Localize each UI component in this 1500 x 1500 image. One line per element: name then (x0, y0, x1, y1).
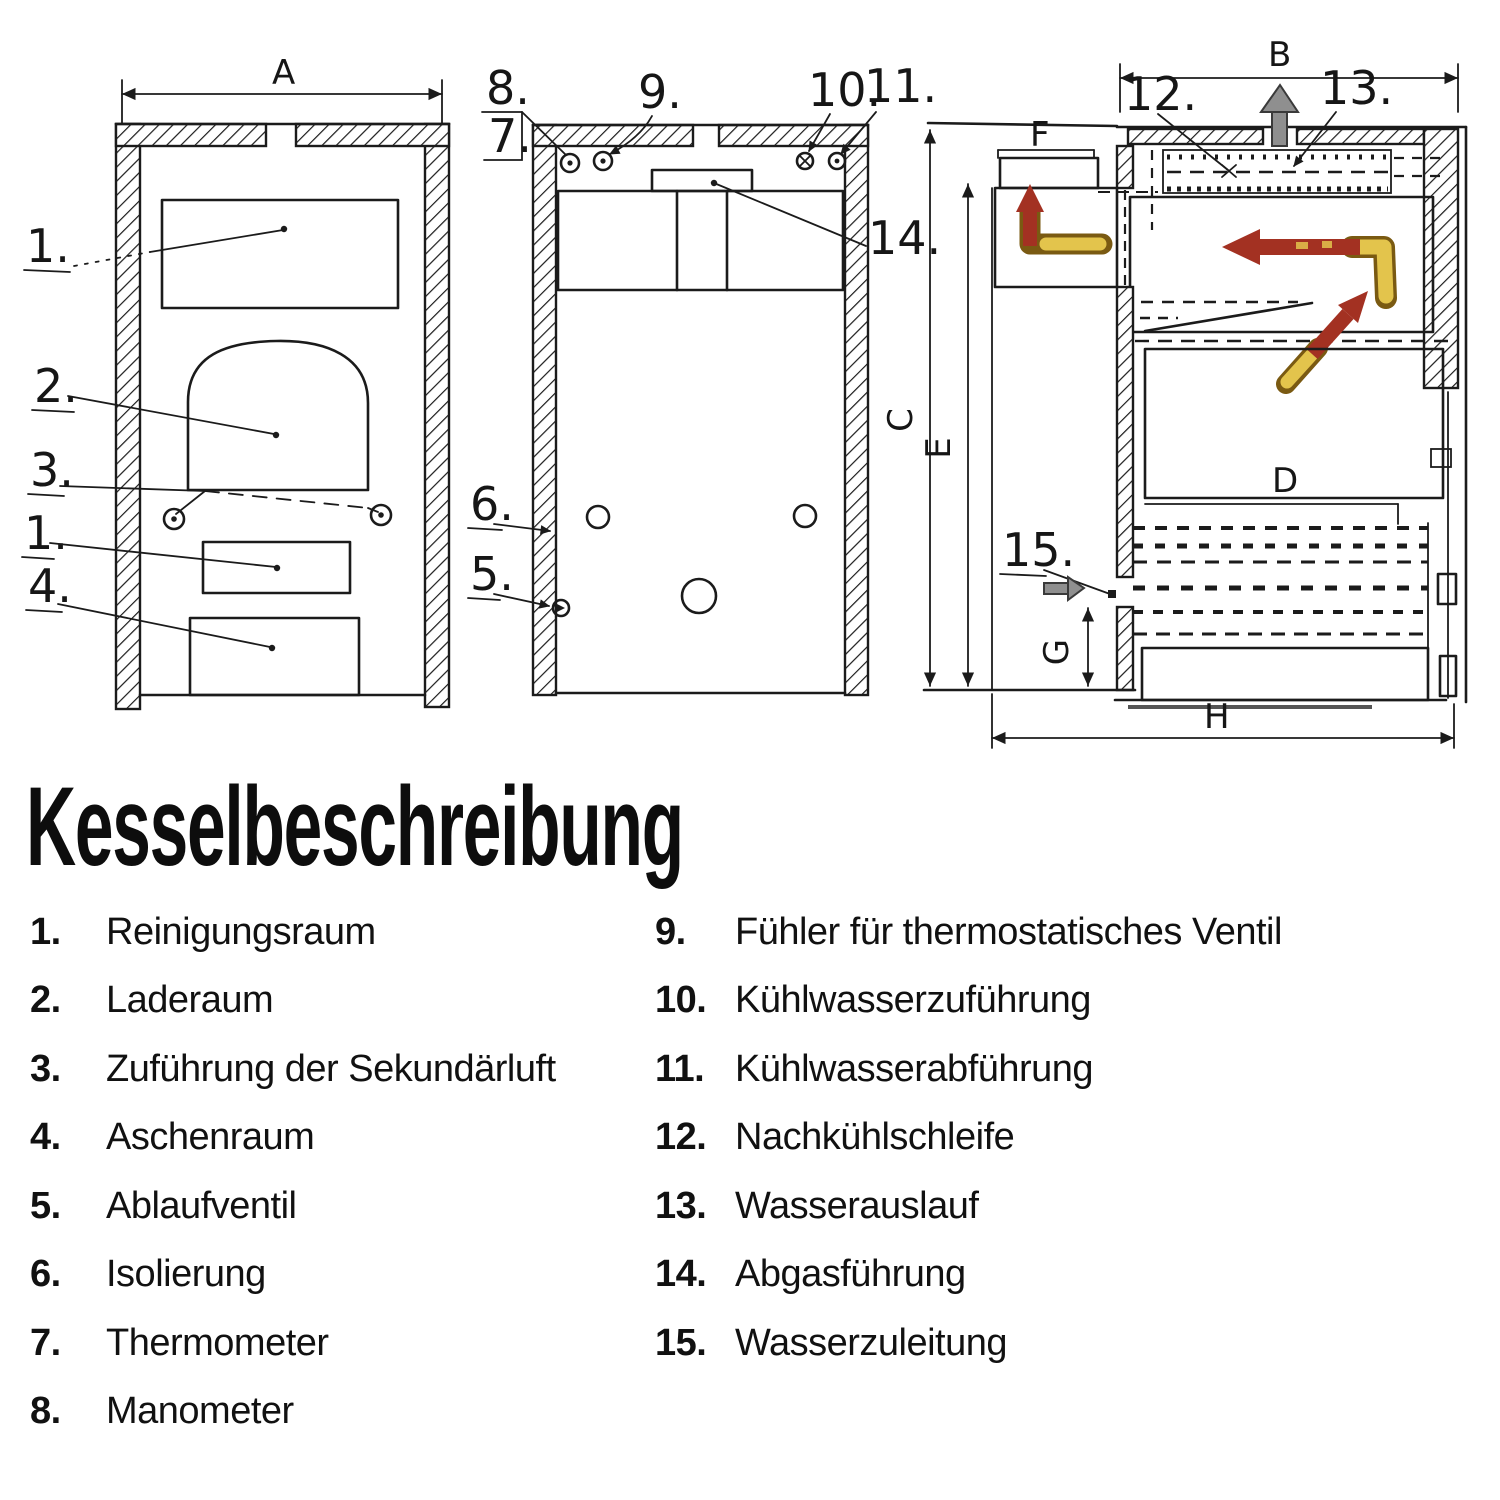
legend-item: 3.Zuführung der Sekundärluft (30, 1035, 556, 1104)
legend-item-label: Abgasführung (735, 1253, 966, 1296)
legend-item: 9.Fühler für thermostatisches Ventil (655, 898, 1282, 967)
legend-item: 10.Kühlwasserzuführung (655, 967, 1282, 1036)
legend-item: 12.Nachkühlschleife (655, 1104, 1282, 1173)
legend-column-left: 1.Reinigungsraum 2.Laderaum 3.Zuführung … (30, 898, 556, 1446)
legend-item-number: 4. (30, 1116, 106, 1159)
legend-item-number: 8. (30, 1390, 106, 1433)
flue-exit-arrow (1016, 184, 1102, 246)
legend-item: 13.Wasserauslauf (655, 1172, 1282, 1241)
callout-12-label: 12. (1124, 67, 1197, 121)
nachkuehlschleife-coil (1152, 150, 1446, 230)
legend-item-number: 7. (30, 1322, 106, 1365)
callout-15-label: 15. (1002, 523, 1075, 577)
dimension-g: G (1037, 608, 1088, 686)
legend-item: 14.Abgasführung (655, 1241, 1282, 1310)
legend-item-number: 5. (30, 1185, 106, 1228)
legend-column-right: 9.Fühler für thermostatisches Ventil 10.… (655, 898, 1282, 1378)
rear-cleaning-panel (558, 191, 843, 290)
legend-item: 7.Thermometer (30, 1309, 556, 1378)
dim-label-d: D (1272, 461, 1298, 501)
upper-gas-chamber (1120, 197, 1452, 341)
legend-item: 5.Ablaufventil (30, 1172, 556, 1241)
legend-item-label: Fühler für thermostatisches Ventil (735, 911, 1282, 954)
dim-label-a: A (272, 53, 295, 93)
callout-2: 2. (32, 359, 279, 438)
rear-pipe-stubs (587, 505, 816, 613)
side-section-view: B (881, 35, 1466, 748)
legend-item-label: Reinigungsraum (106, 911, 376, 954)
callout-1-label: 1. (26, 219, 70, 273)
legend-item-number: 9. (655, 911, 735, 954)
dimension-a: A (122, 53, 442, 128)
aschenraum-opening (190, 618, 359, 695)
side-outer-jacket (1115, 127, 1466, 707)
legend-item-number: 11. (655, 1048, 735, 1091)
dim-label-g: G (1037, 639, 1077, 665)
flue-gas-flow-arrow (1222, 229, 1386, 298)
callout-3: 3. (28, 443, 378, 514)
legend-item-number: 13. (655, 1185, 735, 1228)
flue-outlet-box (652, 170, 752, 191)
legend-item: 1.Reinigungsraum (30, 898, 556, 967)
thermometer-manometer-bosses (561, 152, 612, 172)
dim-label-c: C (881, 408, 921, 432)
legend-item: 15.Wasserzuleitung (655, 1309, 1282, 1378)
legend-item-label: Nachkühlschleife (735, 1116, 1014, 1159)
callout-14: 14. (711, 180, 941, 265)
legend-item-label: Laderaum (106, 979, 273, 1022)
legend-item-number: 14. (655, 1253, 735, 1296)
dim-label-f: F (1030, 115, 1050, 155)
page-title: Kesselbeschreibung (26, 762, 683, 891)
callout-13-label: 13. (1320, 61, 1393, 115)
reinigungsraum-opening (162, 200, 398, 308)
legend-item-number: 6. (30, 1253, 106, 1296)
dim-label-b: B (1268, 35, 1291, 75)
callout-1b-label: 1. (24, 506, 68, 560)
legend-item-label: Wasserauslauf (735, 1185, 978, 1228)
grate-section (1133, 523, 1428, 648)
legend-item: 4.Aschenraum (30, 1104, 556, 1173)
legend-item: 6.Isolierung (30, 1241, 556, 1310)
boiler-technical-drawing: A 1. (0, 0, 1500, 760)
callout-11-label: 11. (864, 59, 937, 113)
legend-item: 8.Manometer (30, 1378, 556, 1447)
dimension-f: F (998, 115, 1094, 158)
callout-2-label: 2. (34, 359, 78, 413)
callout-4: 4. (26, 559, 275, 651)
callout-9-label: 9. (638, 65, 682, 119)
legend-item-label: Aschenraum (106, 1116, 314, 1159)
sekundaerluft-inlets (164, 505, 391, 529)
legend-item-label: Ablaufventil (106, 1185, 296, 1228)
legend-item-label: Kühlwasserzuführung (735, 979, 1091, 1022)
dim-label-e: E (919, 437, 959, 458)
callout-5-label: 5. (470, 547, 514, 601)
legend-item-label: Kühlwasserabführung (735, 1048, 1093, 1091)
legend-item-label: Wasserzuleitung (735, 1322, 1007, 1365)
laderaum-door-arch (188, 341, 368, 490)
callout-8-label: 8. (486, 61, 530, 115)
water-inlet-arrow (1044, 577, 1084, 600)
rear-view: 8. 7. 9. 10. 11. 14. 6. 5. (468, 59, 941, 695)
legend-item: 2.Laderaum (30, 967, 556, 1036)
front-view: A 1. (22, 53, 449, 709)
legend-item-number: 10. (655, 979, 735, 1022)
dimension-h: H (992, 694, 1454, 748)
dim-label-h: H (1204, 697, 1230, 737)
callout-12: 12. (1124, 67, 1236, 177)
legend-item-label: Thermometer (106, 1322, 329, 1365)
cooling-water-bosses (797, 153, 845, 169)
legend-item-label: Manometer (106, 1390, 294, 1433)
rear-view-walls (533, 125, 868, 695)
legend-item-number: 2. (30, 979, 106, 1022)
legend-item-number: 1. (30, 911, 106, 954)
water-outlet-arrow (1261, 85, 1298, 146)
callout-6-label: 6. (470, 477, 514, 531)
ash-chamber-bottom (1142, 648, 1428, 700)
legend-item-number: 3. (30, 1048, 106, 1091)
legend-item: 11.Kühlwasserabführung (655, 1035, 1282, 1104)
legend-item-number: 15. (655, 1322, 735, 1365)
callout-7-label: 7. (488, 109, 532, 163)
legend-item-label: Zuführung der Sekundärluft (106, 1048, 556, 1091)
legend-item-label: Isolierung (106, 1253, 266, 1296)
legend-item-number: 12. (655, 1116, 735, 1159)
callout-3-label: 3. (30, 443, 74, 497)
callout-1: 1. (24, 219, 287, 273)
